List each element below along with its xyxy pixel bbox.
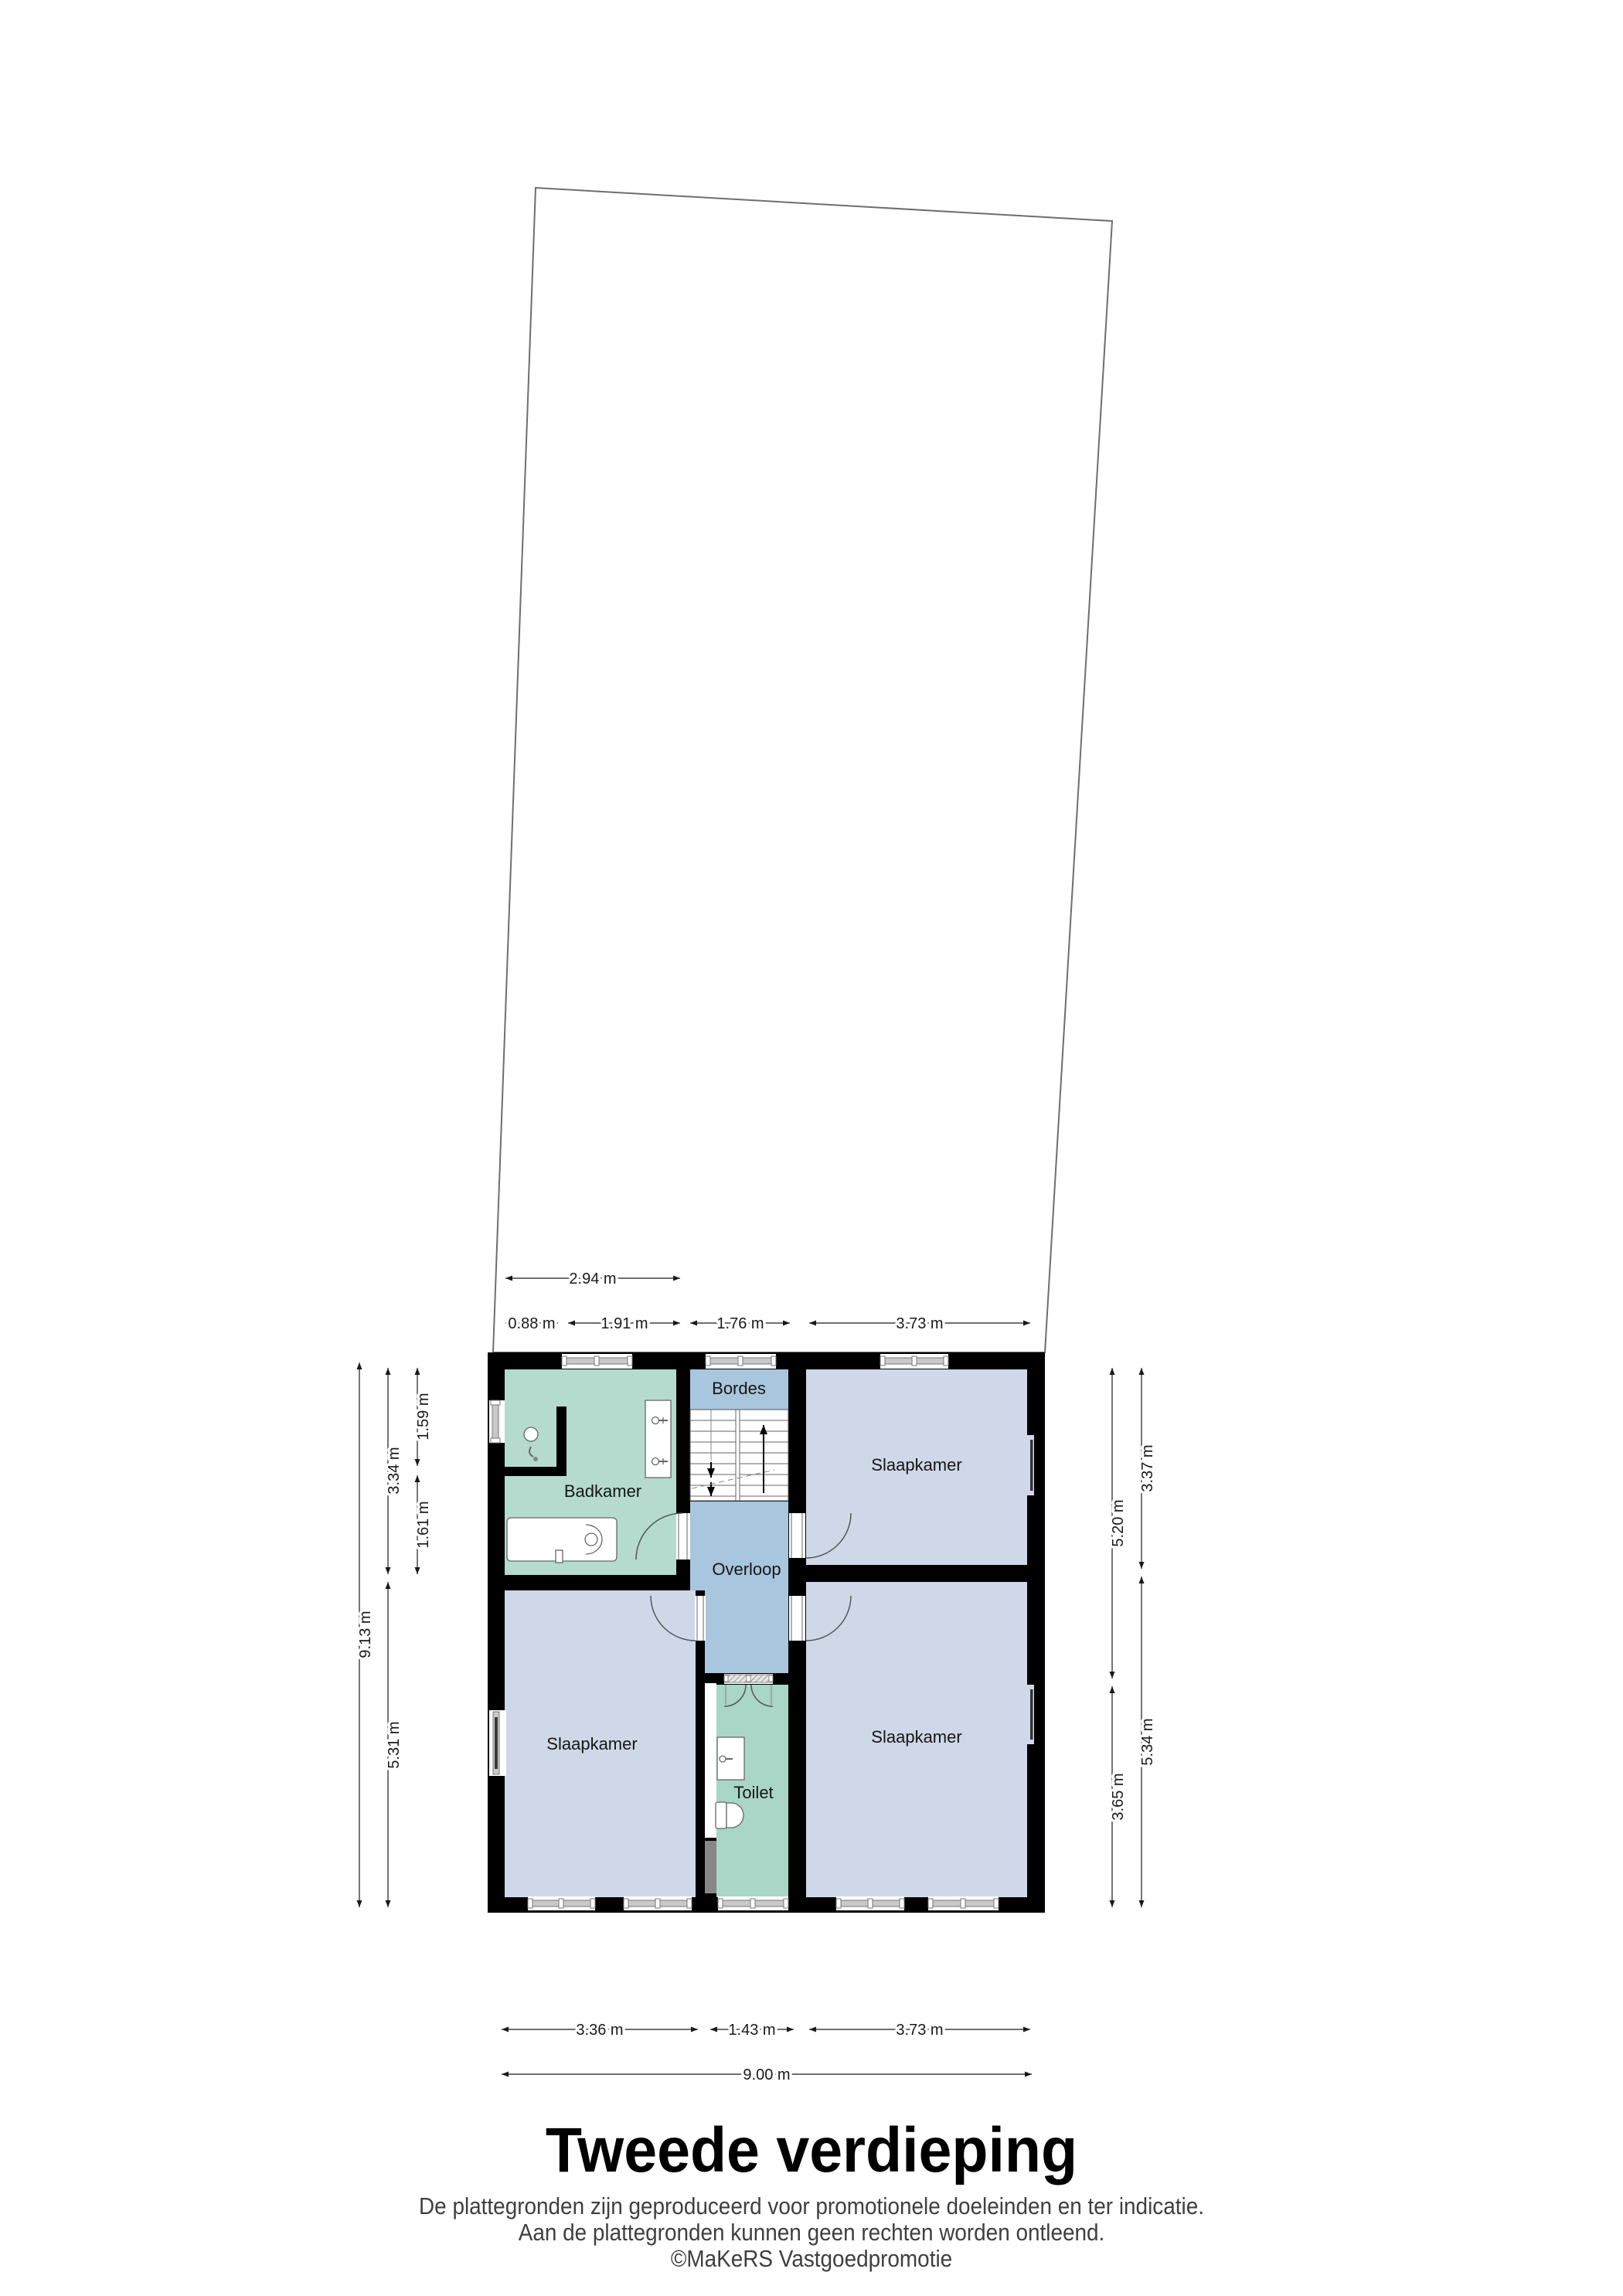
window-bottom-toilet xyxy=(718,1896,788,1910)
window-top-bordes xyxy=(706,1354,776,1369)
building xyxy=(488,1352,1045,1913)
page-title: Tweede verdieping xyxy=(49,2119,1574,2182)
label-badkamer: Badkamer xyxy=(564,1481,641,1501)
dim-top-088: 0.88 m xyxy=(508,1315,555,1332)
window-left-badkamer xyxy=(489,1400,505,1443)
disclaimer-line-1: De plattegronden zijn geproduceerd voor … xyxy=(81,2193,1542,2219)
dim-bottom-900: 9.00 m xyxy=(743,2066,790,2083)
toilet-wc xyxy=(716,1802,743,1828)
dim-left-159: 1.59 m xyxy=(415,1393,432,1440)
dim-top-294: 2.94 m xyxy=(569,1270,616,1287)
right-wall-recess-top xyxy=(1027,1435,1034,1495)
dim-right-520: 5.20 m xyxy=(1110,1499,1127,1546)
shower-wall-vertical xyxy=(556,1407,567,1476)
window-left-slaapkamer xyxy=(489,1710,506,1776)
dim-top-373: 3.73 m xyxy=(896,1315,943,1332)
floorplan-drawing: Bordes Badkamer Slaapkamer Overloop Slaa… xyxy=(0,0,1623,2296)
window-bottom-2 xyxy=(624,1896,692,1910)
window-top-slaapkamer xyxy=(880,1354,948,1369)
dim-left-334: 3.34 m xyxy=(386,1447,403,1494)
copyright-line: ©MaKeRS Vastgoedpromotie xyxy=(81,2246,1542,2272)
dim-left-913: 9.13 m xyxy=(357,1611,374,1658)
label-overloop: Overloop xyxy=(712,1560,781,1579)
toilet-basin xyxy=(717,1737,744,1780)
window-bottom-4 xyxy=(836,1896,904,1910)
bathroom-vanity xyxy=(645,1400,671,1478)
bathtub xyxy=(507,1518,617,1563)
dim-left-161: 1.61 m xyxy=(415,1501,432,1548)
window-top-badkamer xyxy=(562,1354,632,1369)
toilet-recess xyxy=(705,1683,716,1838)
window-bottom-1 xyxy=(528,1896,595,1910)
label-toilet: Toilet xyxy=(733,1783,773,1802)
dim-right-534: 5.34 m xyxy=(1139,1718,1156,1765)
dim-right-337: 3.37 m xyxy=(1139,1444,1156,1492)
right-wall-recess-bottom xyxy=(1027,1685,1034,1744)
dim-bottom-143: 1.43 m xyxy=(728,2022,775,2039)
shower-wall-horizontal xyxy=(505,1467,567,1476)
toilet-shaft xyxy=(705,1841,716,1893)
disclaimer: De plattegronden zijn geproduceerd voor … xyxy=(81,2193,1542,2272)
room-overloop-lower xyxy=(705,1590,788,1673)
floorplan-page: Bordes Badkamer Slaapkamer Overloop Slaa… xyxy=(0,0,1623,2296)
dim-right-365: 3.65 m xyxy=(1110,1773,1127,1820)
label-bordes: Bordes xyxy=(712,1379,766,1398)
window-bottom-5 xyxy=(928,1896,999,1910)
label-slaapkamer-top-right: Slaapkamer xyxy=(871,1455,961,1475)
parcel-outline xyxy=(493,188,1112,1352)
dim-left-531: 5.31 m xyxy=(386,1721,403,1768)
dim-bottom-373: 3.73 m xyxy=(896,2022,943,2039)
label-slaapkamer-bottom-left: Slaapkamer xyxy=(546,1734,637,1753)
dim-top-191: 1.91 m xyxy=(601,1315,648,1332)
disclaimer-line-2: Aan de plattegronden kunnen geen rechten… xyxy=(81,2219,1542,2246)
dim-bottom-336: 3.36 m xyxy=(576,2022,623,2039)
dim-top-176: 1.76 m xyxy=(716,1315,764,1332)
label-slaapkamer-bottom-right: Slaapkamer xyxy=(871,1727,961,1747)
